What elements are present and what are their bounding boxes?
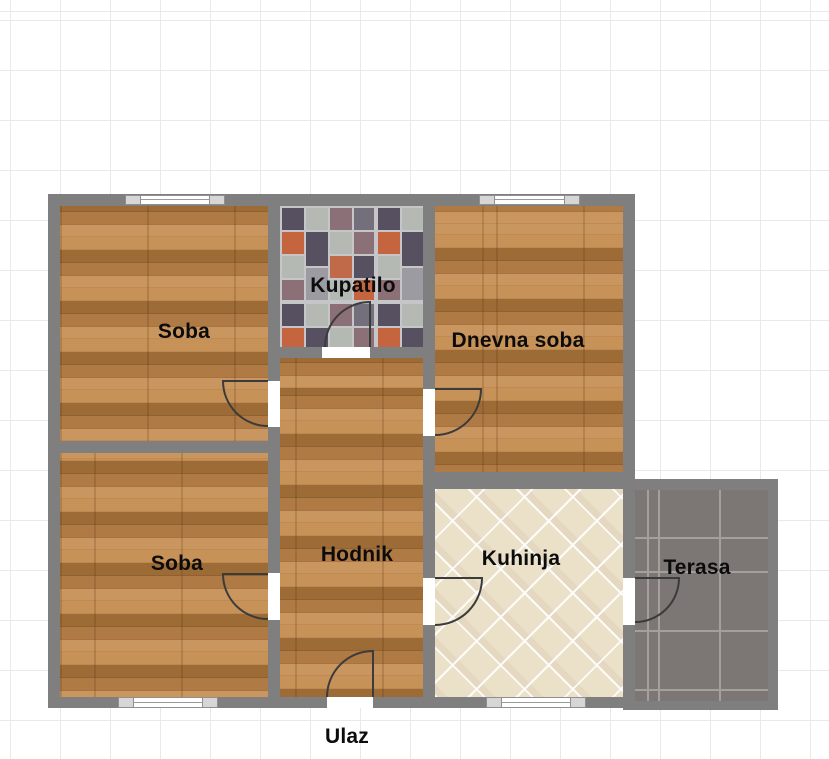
window-kuhinja[interactable]	[486, 697, 586, 708]
door-ulaz[interactable]	[327, 651, 373, 697]
room-label-terasa: Terasa	[663, 556, 730, 580]
window-glass	[495, 196, 564, 204]
window-end-cap	[126, 196, 141, 204]
window-end-cap	[570, 698, 585, 707]
door-opening-dnevna	[423, 389, 435, 436]
door-soba-bottom[interactable]	[223, 574, 268, 619]
room-label-soba-top: Soba	[158, 320, 210, 344]
door-opening-kupatilo	[322, 347, 370, 358]
window-end-cap	[202, 698, 217, 707]
window-soba-bottom[interactable]	[118, 697, 218, 708]
entrance-label: Ulaz	[325, 725, 369, 749]
wall-soba-divider	[60, 441, 268, 453]
room-label-soba-bottom: Soba	[151, 552, 203, 576]
room-label-hodnik: Hodnik	[321, 543, 393, 567]
door-soba-top[interactable]	[223, 381, 268, 426]
room-label-kuhinja: Kuhinja	[482, 547, 560, 571]
door-opening-ulaz	[327, 697, 373, 708]
door-opening-soba-top	[268, 381, 280, 427]
window-end-cap	[209, 196, 224, 204]
wall-center-left	[268, 206, 280, 697]
room-label-kupatilo: Kupatilo	[310, 274, 396, 298]
door-kuhinja[interactable]	[435, 578, 482, 625]
door-opening-kuhinja	[423, 578, 435, 625]
wall-left	[48, 194, 60, 708]
window-end-cap	[487, 698, 502, 707]
window-glass	[134, 698, 202, 707]
door-dnevna-soba[interactable]	[435, 389, 481, 435]
window-end-cap	[119, 698, 134, 707]
window-end-cap	[480, 196, 495, 204]
wall-right	[623, 194, 635, 708]
window-dnevna-soba[interactable]	[479, 195, 580, 205]
window-end-cap	[564, 196, 579, 204]
door-opening-terasa	[623, 578, 635, 625]
room-floor-hodnik[interactable]	[280, 358, 423, 697]
window-glass	[502, 698, 570, 707]
door-kupatilo[interactable]	[325, 302, 370, 347]
room-label-dnevna-soba: Dnevna soba	[452, 329, 585, 353]
window-glass	[141, 196, 209, 204]
floorplan-canvas: Soba Kupatilo Dnevna soba Soba Hodnik Ku…	[0, 0, 829, 759]
door-opening-soba-bottom	[268, 573, 280, 620]
window-soba-top[interactable]	[125, 195, 225, 205]
wall-dnevna-kuhinja	[435, 472, 623, 489]
door-terasa[interactable]	[635, 578, 679, 622]
